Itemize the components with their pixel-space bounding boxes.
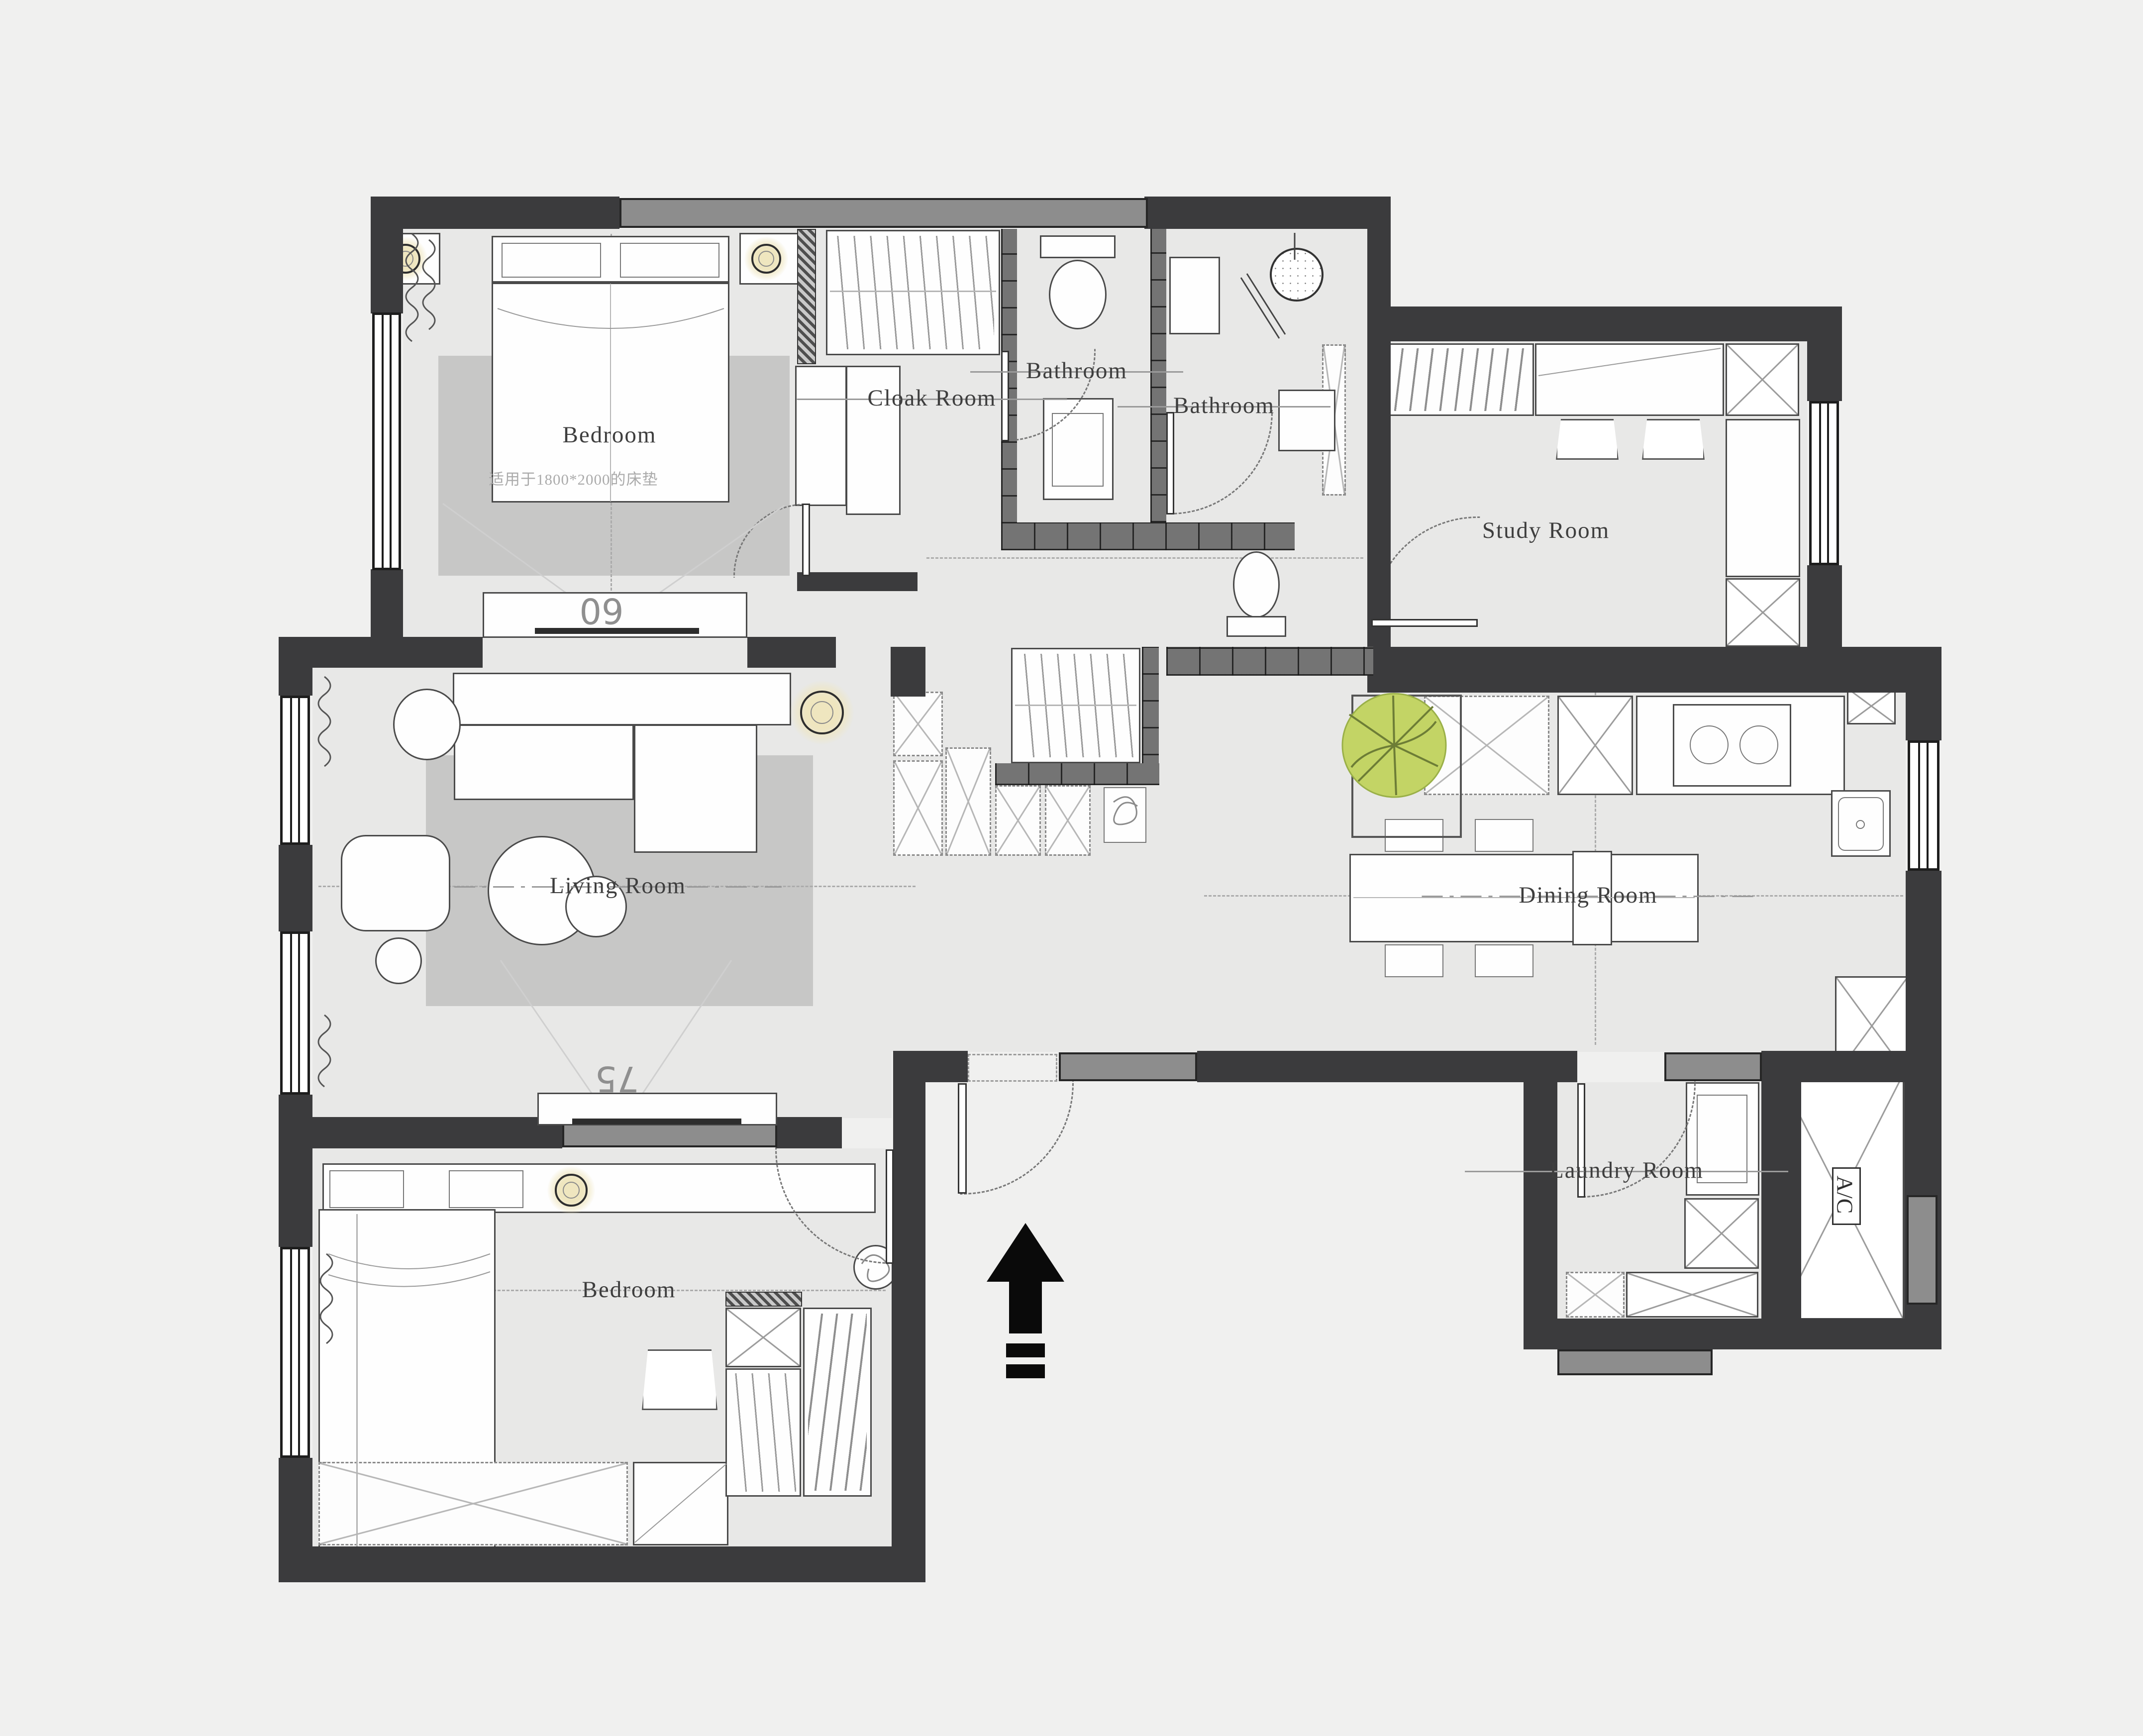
sill-laundry-bottom: [1557, 1349, 1713, 1375]
wall-second-left-upper: [279, 1149, 312, 1247]
sill-laundry-top: [1664, 1052, 1762, 1081]
closet-hatch-second: [725, 1292, 802, 1307]
entrance-arrow-shaft: [1009, 1281, 1042, 1333]
tv-size-label-master: 60: [579, 590, 623, 631]
window-living-2: [280, 931, 310, 1095]
wall-bath1-bottom-tile: [1001, 522, 1295, 550]
wall-second-bottom: [279, 1546, 925, 1582]
room-label-laundry: Laundry Room: [1549, 1157, 1704, 1184]
room-label-dining: Dining Room: [1519, 882, 1657, 909]
wall-top-left: [371, 197, 619, 229]
wall-jog-hall: [893, 1051, 925, 1149]
floor-plan-canvas: Bedroom 适用于1800*2000的床垫 Cloak Room Bathr…: [0, 0, 2143, 1736]
wall-living-second-left: [312, 1117, 562, 1148]
sill-top-center: [619, 198, 1148, 228]
entrance-arrow-bar-2: [1006, 1364, 1045, 1378]
wall-south-hall: [1197, 1051, 1577, 1082]
room-label-living: Living Room: [550, 872, 686, 899]
entrance-arrow-icon: [987, 1223, 1064, 1282]
decor-overlay: [0, 0, 2143, 1736]
wall-living-left-mid: [279, 845, 312, 931]
room-label-bedroom-master: Bedroom: [563, 421, 657, 448]
wall-dining-right-lower: [1906, 871, 1941, 1051]
room-label-bedroom-second: Bedroom: [582, 1276, 676, 1303]
door-study: [1371, 619, 1478, 627]
wall-bedroom-left-upper: [371, 197, 403, 313]
door-bedroom-master: [802, 504, 810, 576]
wall-top-right: [1144, 197, 1391, 229]
wall-laundry-left: [1524, 1082, 1557, 1320]
wall-laundry-right: [1761, 1082, 1801, 1348]
door-bath1: [1001, 351, 1009, 441]
room-label-cloak: Cloak Room: [868, 385, 997, 411]
wall-storage-tile-v: [1142, 647, 1159, 782]
window-study: [1809, 401, 1839, 565]
wall-hall-stub: [891, 647, 925, 697]
window-living-1: [280, 696, 310, 845]
window-dining: [1908, 740, 1939, 871]
wall-master-living-left: [312, 637, 483, 668]
room-label-bathroom-1: Bathroom: [1026, 357, 1127, 384]
tv-size-label-living: 75: [595, 1058, 639, 1099]
room-label-bathroom-2: Bathroom: [1173, 392, 1275, 419]
shower-glass-lines: [1241, 233, 1295, 338]
sill-entry: [1059, 1052, 1197, 1081]
wall-dining-right-upper: [1906, 693, 1941, 740]
wall-second-right: [892, 1149, 925, 1582]
wall-living-left-lower: [279, 1095, 312, 1154]
door-entrance: [958, 1083, 967, 1194]
wall-storage-tile-h: [995, 763, 1159, 785]
wall-living-left-upper: [279, 637, 312, 696]
wall-master-living-right: [747, 637, 836, 668]
wall-bath-divider-tile: [1150, 229, 1166, 522]
room-label-study: Study Room: [1482, 517, 1610, 544]
wall-study-top: [1391, 306, 1841, 341]
cabinet-diagonal: [635, 1464, 726, 1542]
wall-living-second-right: [776, 1117, 842, 1148]
wall-bath2-right: [1367, 229, 1391, 678]
note-mattress: 适用于1800*2000的床垫: [489, 467, 658, 489]
wall-laundry-bottom: [1524, 1319, 1941, 1349]
window-bedroom-master: [372, 312, 401, 570]
bed-blanket-curves: [328, 308, 1721, 1542]
sill-ac-right: [1907, 1195, 1938, 1305]
entrance-arrow-bar-1: [1006, 1343, 1045, 1357]
door-bedroom-second: [886, 1149, 894, 1264]
wall-bedroom-left-lower: [371, 569, 403, 642]
wall-study-right-upper: [1807, 306, 1842, 401]
plant-icon: [1342, 694, 1461, 837]
tv-living: [572, 1119, 741, 1124]
ac-unit-label: A/C: [1832, 1176, 1858, 1214]
wall-bath2-bottom-tile: [1166, 647, 1373, 676]
wall-cloak-hatch: [797, 229, 816, 364]
wall-cloak-bottom: [797, 572, 918, 591]
desk-diagonal: [1538, 348, 1721, 376]
wall-study-right-lower: [1807, 565, 1842, 648]
window-bedroom-second: [280, 1247, 310, 1458]
wall-dining-top: [1367, 647, 1941, 693]
door-bath2: [1166, 412, 1174, 514]
wall-south-ac-top: [1761, 1051, 1941, 1082]
